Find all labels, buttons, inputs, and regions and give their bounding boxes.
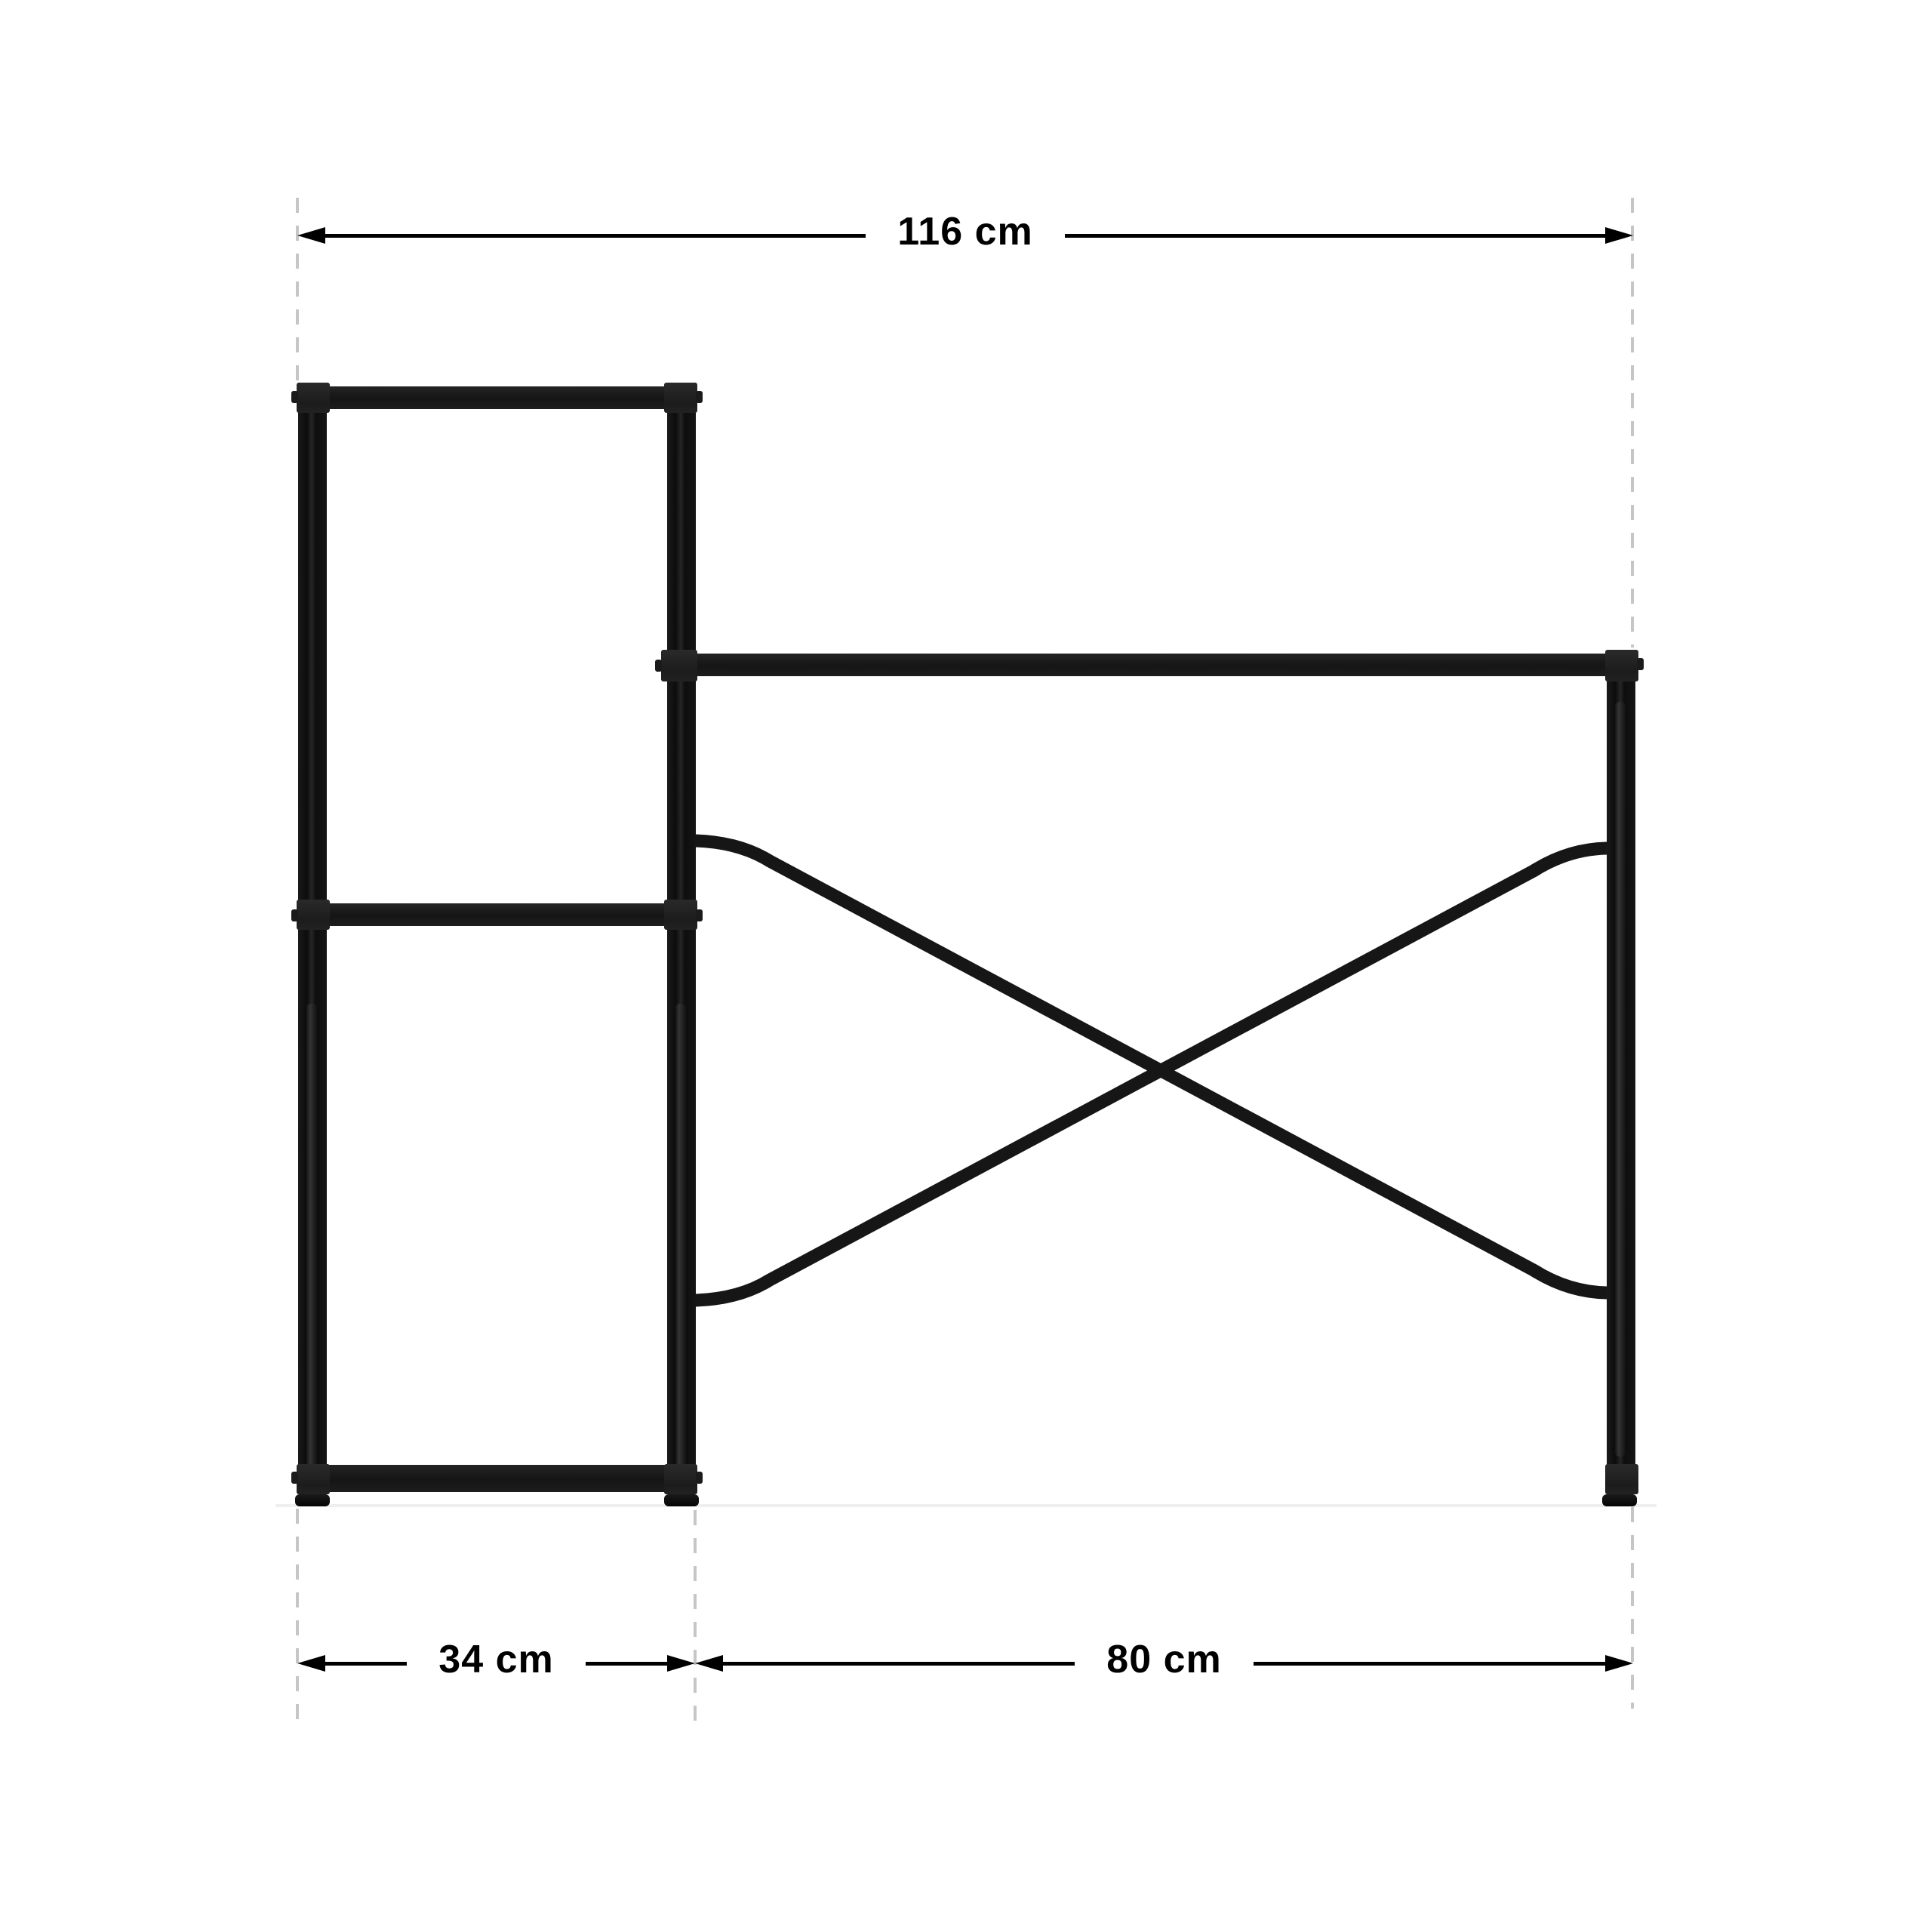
bolt-middle-right-icon xyxy=(696,909,703,921)
desk-bar-right-cap xyxy=(1605,650,1638,681)
shelf-middle-bar xyxy=(327,903,667,926)
desk-leg-foot xyxy=(1602,1494,1637,1506)
shelf-top-bar xyxy=(327,386,667,409)
guides-and-braces-layer xyxy=(0,0,1932,1932)
bolt-top-left-icon xyxy=(291,391,298,403)
shelf-bottom-bar xyxy=(327,1465,667,1492)
arrow-right-icon xyxy=(1605,1655,1633,1672)
dimension-line-segment xyxy=(1065,234,1605,238)
shelf-bottom-right-cap xyxy=(664,1464,697,1494)
dimension-desk-width: 80 cm xyxy=(695,1647,1633,1680)
shelf-left-foot xyxy=(295,1494,330,1506)
shelf-bottom-left-cap xyxy=(297,1464,330,1494)
arrow-right-icon xyxy=(667,1655,695,1672)
dimension-line-segment xyxy=(1254,1662,1605,1666)
shelf-left-rear-leg-tube xyxy=(305,1004,318,1470)
arrow-right-icon xyxy=(1605,227,1633,244)
bolt-bottom-right-icon xyxy=(696,1472,703,1484)
bolt-top-right-icon xyxy=(696,391,703,403)
desk-rear-leg-tube xyxy=(1614,702,1627,1457)
bolt-middle-left-icon xyxy=(291,909,298,921)
bolt-bottom-left-icon xyxy=(291,1472,298,1484)
dimension-label-desk-width: 80 cm xyxy=(1075,1637,1253,1682)
arrow-left-icon xyxy=(695,1655,723,1672)
desk-top-bar xyxy=(696,654,1607,676)
bolt-desk-right-icon xyxy=(1637,658,1644,670)
dimension-overall-width: 116 cm xyxy=(297,219,1633,252)
arrow-left-icon xyxy=(297,227,325,244)
shelf-right-rear-leg-tube xyxy=(674,1004,688,1470)
arrow-left-icon xyxy=(297,1655,325,1672)
dimension-line-segment xyxy=(325,1662,407,1666)
dimension-line-segment xyxy=(325,234,866,238)
bolt-desk-left-icon xyxy=(655,660,662,672)
dimension-line-segment xyxy=(723,1662,1075,1666)
dimension-line-segment xyxy=(586,1662,667,1666)
dimension-shelf-width: 34 cm xyxy=(297,1647,695,1680)
shelf-right-foot xyxy=(664,1494,699,1506)
dimension-label-overall-width: 116 cm xyxy=(866,209,1065,254)
shelf-top-right-cap xyxy=(664,383,697,413)
dimension-diagram-canvas: 116 cm 34 cm 80 cm xyxy=(0,0,1932,1932)
shelf-top-left-cap xyxy=(297,383,330,413)
dimension-label-shelf-width: 34 cm xyxy=(407,1637,585,1682)
desk-bar-left-cap xyxy=(661,650,697,681)
shelf-middle-left-cap xyxy=(297,900,330,930)
shelf-middle-right-cap xyxy=(664,900,697,930)
desk-leg-bottom-cap xyxy=(1605,1464,1638,1494)
